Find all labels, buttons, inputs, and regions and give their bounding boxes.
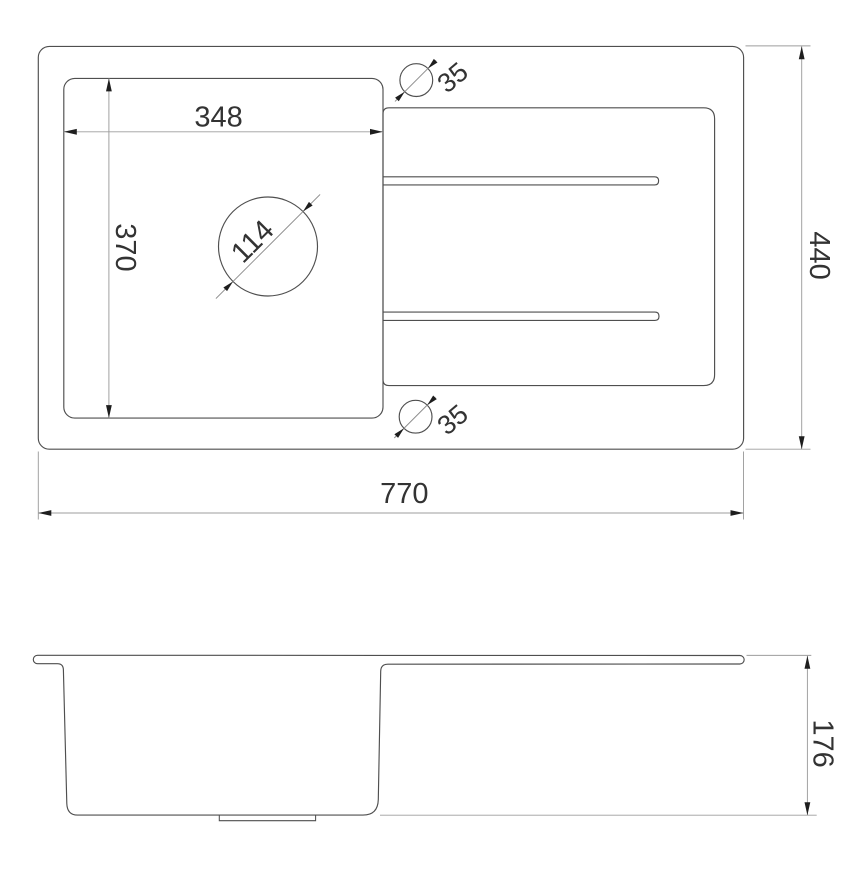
svg-text:770: 770 [380, 478, 428, 510]
svg-text:370: 370 [109, 223, 141, 271]
svg-text:440: 440 [803, 231, 835, 279]
svg-text:348: 348 [194, 101, 242, 133]
svg-text:176: 176 [807, 719, 839, 767]
